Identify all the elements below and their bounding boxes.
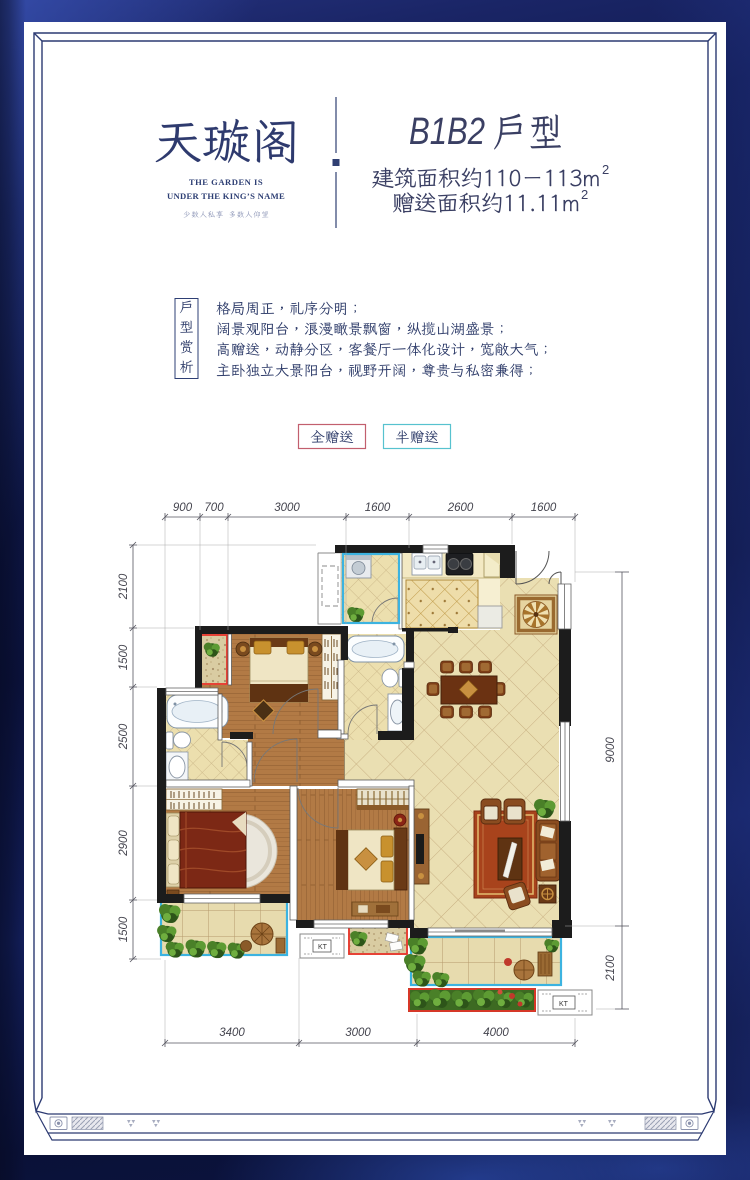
svg-text:2100: 2100 [118,573,130,600]
svg-text:9000: 9000 [605,737,617,763]
svg-text:2900: 2900 [118,830,130,857]
svg-text:KT: KT [559,1001,569,1008]
svg-text:1600: 1600 [365,502,391,514]
svg-text:900: 900 [173,502,193,514]
svg-text:1500: 1500 [118,644,130,670]
svg-text:700: 700 [204,502,224,514]
svg-text:3000: 3000 [345,1027,371,1039]
svg-text:KT: KT [318,944,328,951]
svg-text:4000: 4000 [483,1027,509,1039]
svg-text:2500: 2500 [118,723,130,750]
svg-text:2100: 2100 [605,955,617,982]
svg-text:2600: 2600 [447,502,474,514]
svg-text:1600: 1600 [531,502,557,514]
svg-text:3000: 3000 [274,502,300,514]
svg-text:2: 2 [602,162,609,177]
svg-text:B1B2: B1B2 [409,111,485,153]
svg-text:3400: 3400 [219,1027,245,1039]
svg-text:1500: 1500 [118,916,130,942]
